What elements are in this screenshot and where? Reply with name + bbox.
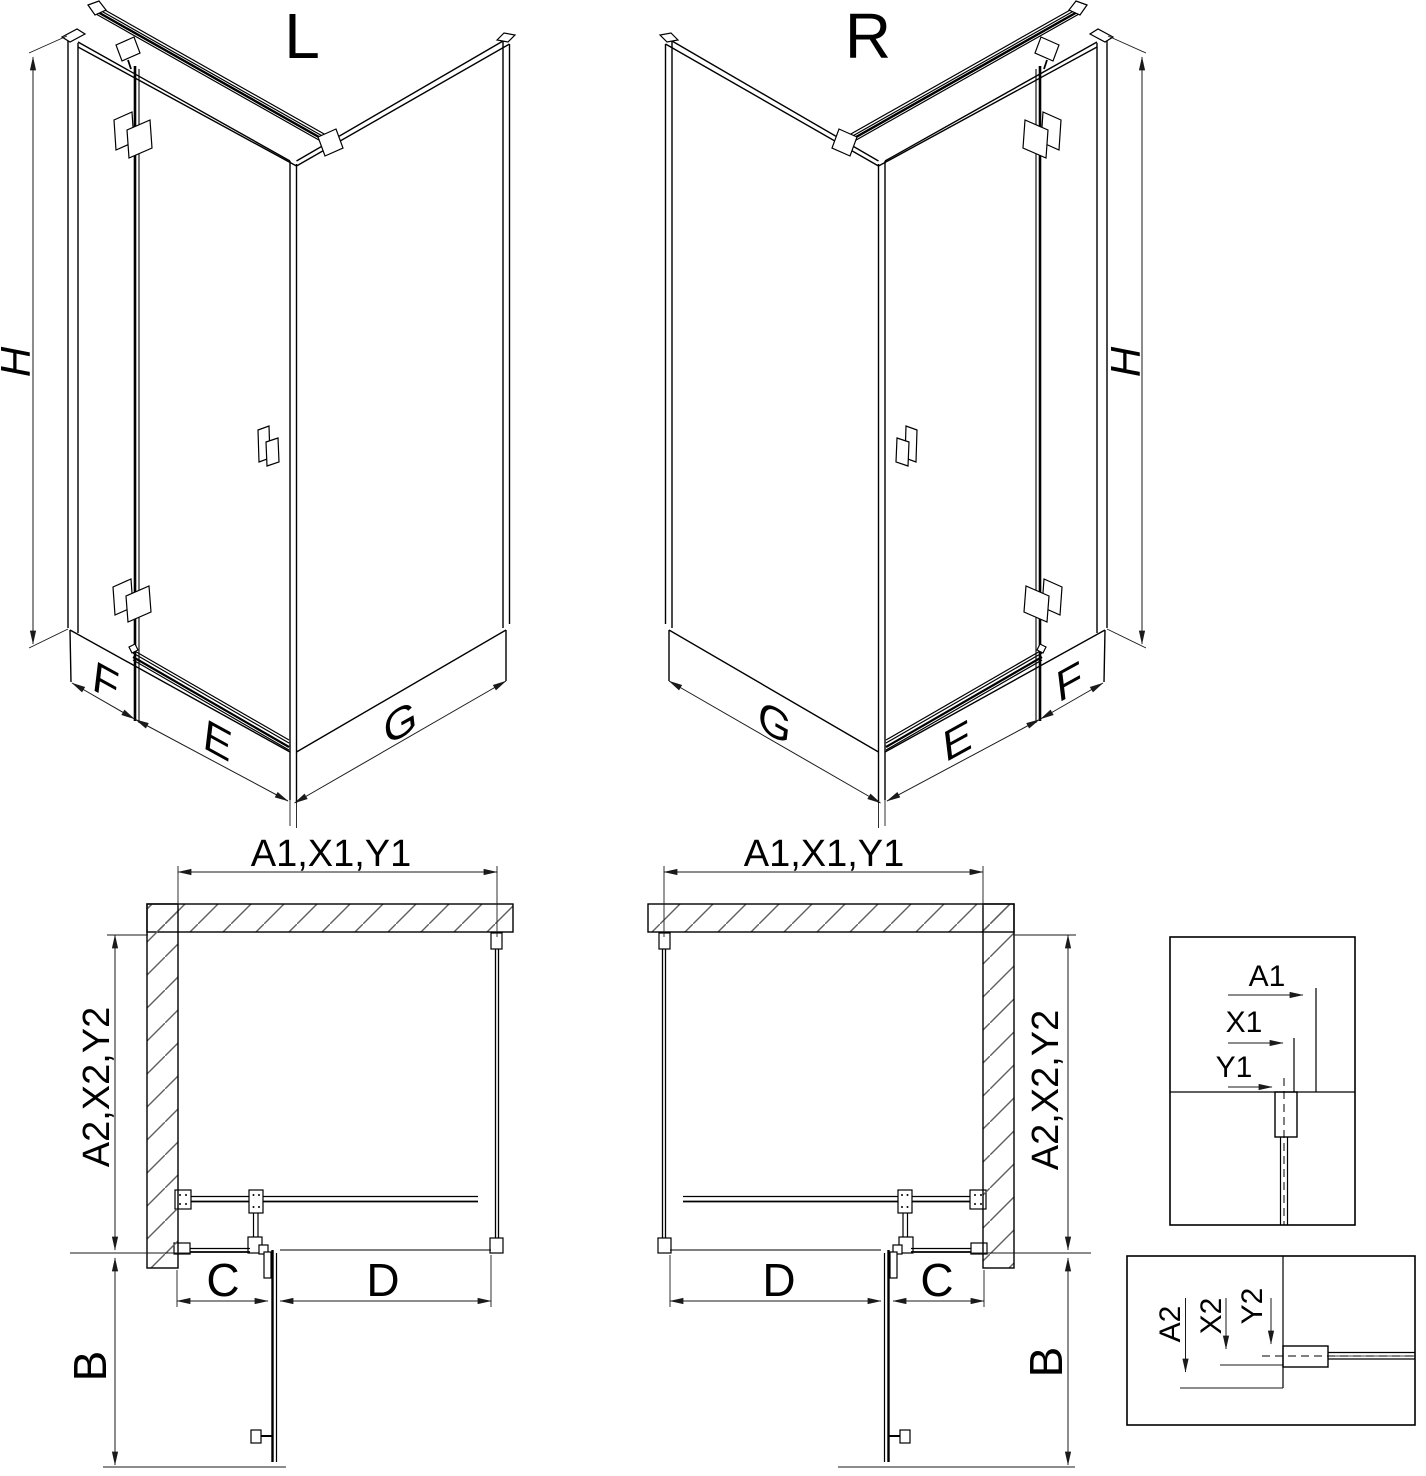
wall-hatch-top [147,904,513,932]
iso-left-title: L [284,0,320,72]
plan-open-door [251,1245,277,1462]
dimension-h [29,36,68,648]
technical-drawing: L H F E G R H G E F A1,X1,Y1 A2,X2,Y2 C … [0,0,1426,1476]
wall-hatch-top-right [648,904,1014,932]
detail-depth-x2-label: X2 [1195,1298,1228,1335]
plan-support-bar [175,1190,478,1253]
wall-hatch-side [147,904,178,1268]
plan-right-width-label: A1,X1,Y1 [744,833,905,875]
plan-left-c-label: C [206,1254,239,1306]
side-panel-glass [62,29,297,752]
plan-left-width-label: A1,X1,Y1 [251,833,412,875]
plan-view-left-geometry [174,933,503,1462]
door-panel [135,66,139,723]
hinge-top [114,112,152,158]
plan-left-b-label: B [64,1351,116,1382]
iso-left-f-label: F [90,651,121,712]
hinge-bottom [113,579,151,622]
door-handle [258,426,279,466]
wall-hatch-side-right [983,904,1014,1268]
plan-right-depth-label: A2,X2,Y2 [1025,1010,1067,1171]
detail-depth-a2-label: A2 [1154,1306,1187,1343]
iso-right-title: R [845,0,891,72]
corner-edge [290,161,297,828]
plan-view-right-geometry [658,933,987,1462]
detail-width-a1-label: A1 [1249,960,1286,993]
iso-right-h-label: H [1102,346,1149,377]
detail-depth-y2-label: Y2 [1236,1288,1269,1325]
plan-right-b-label: B [1020,1347,1072,1378]
plan-right-d-label: D [762,1254,795,1306]
plan-left-dimensions [70,866,497,1467]
plan-side-glass [490,933,503,1253]
plan-right-c-label: C [920,1254,953,1306]
plan-left-depth-label: A2,X2,Y2 [76,1007,118,1168]
iso-right-f-label: F [1054,651,1085,712]
detail-width-x1-label: X1 [1226,1006,1263,1039]
plan-left-walls [147,904,513,1268]
plan-right-walls [648,904,1014,1268]
plan-fixed-glass [174,1243,250,1254]
plan-left-d-label: D [366,1254,399,1306]
detail-width-y1-label: Y1 [1216,1051,1253,1084]
drawing-page: L H F E G R H G E F A1,X1,Y1 A2,X2,Y2 C … [0,0,1426,1476]
iso-left-h-label: H [0,346,39,377]
